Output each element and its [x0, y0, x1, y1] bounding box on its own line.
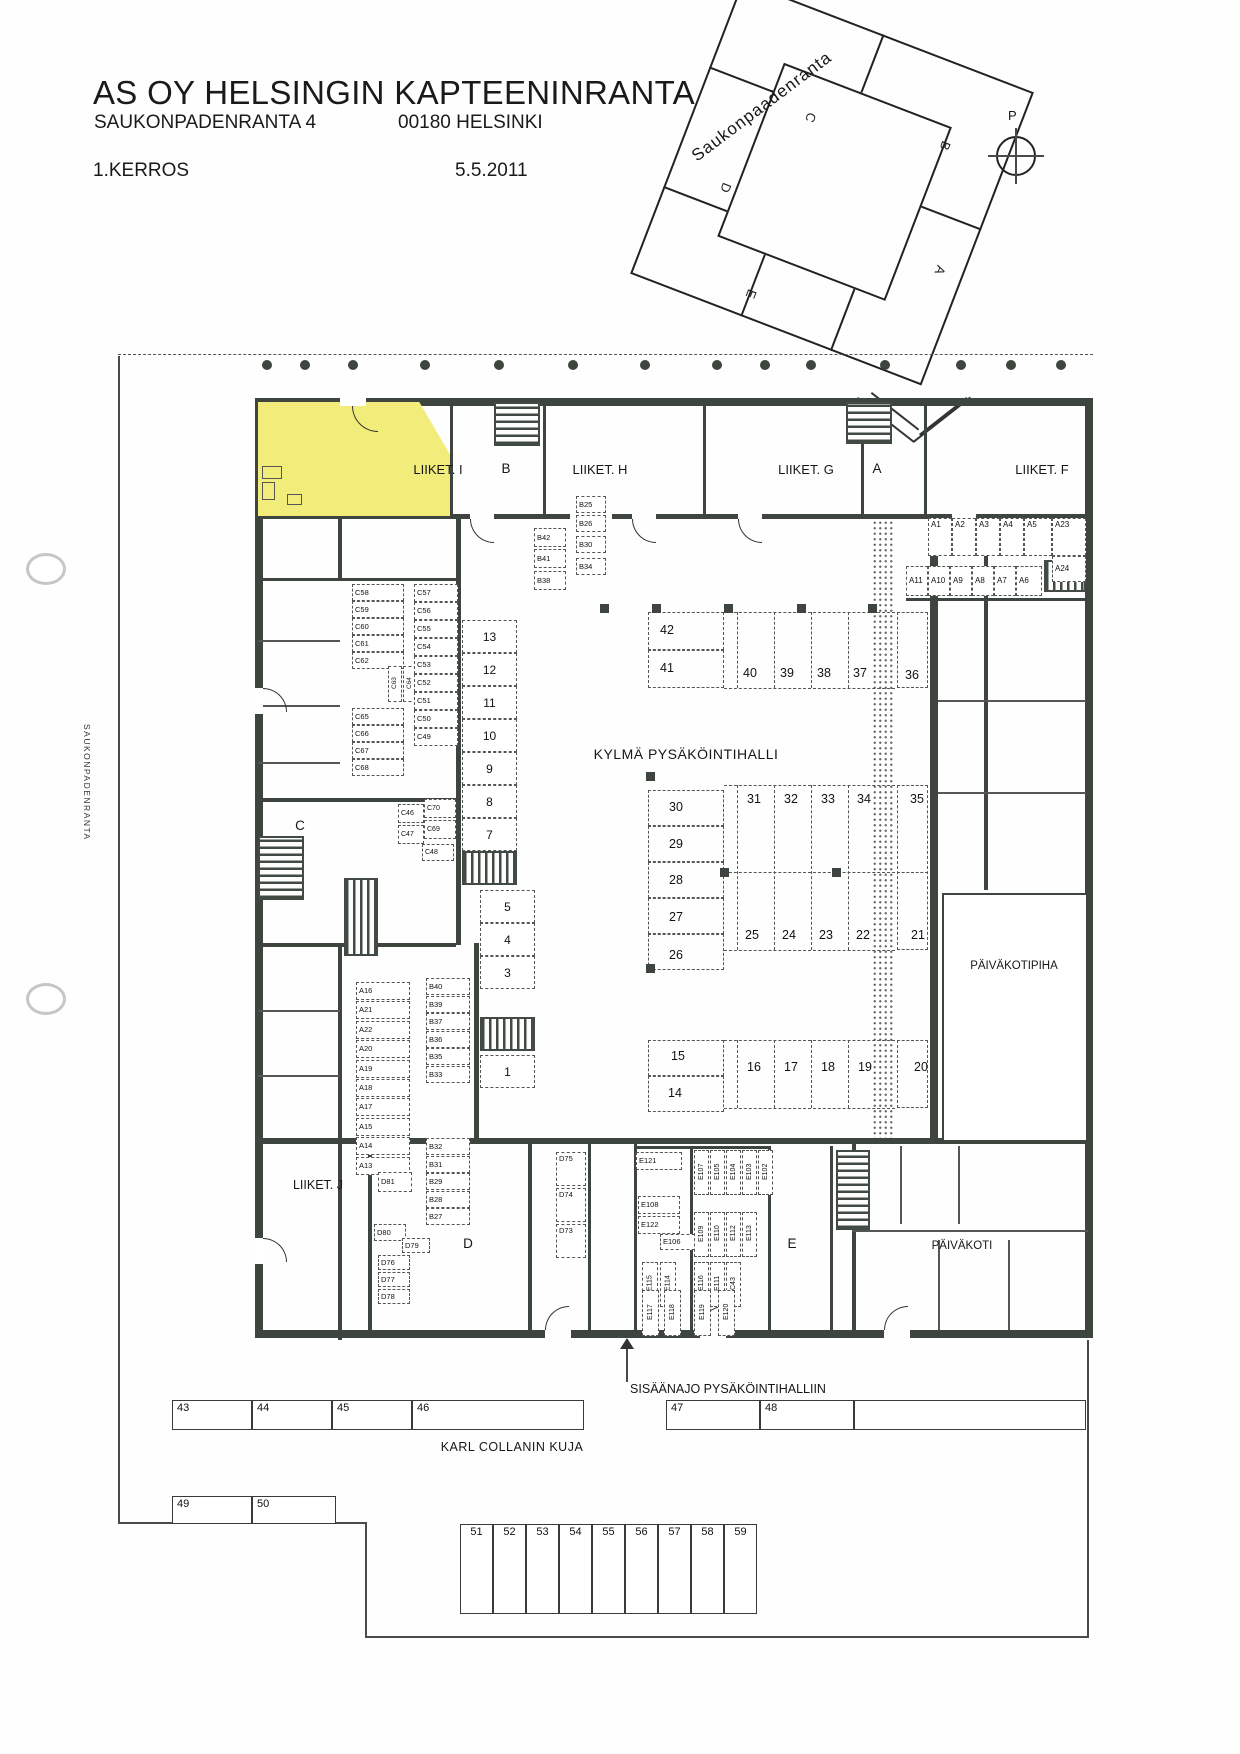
storage-room-label: C69 [424, 820, 456, 839]
parking-space-number: 35 [910, 792, 924, 806]
unit-label-liiket-h: LIIKET. H [573, 462, 628, 477]
parking-space: 9 [462, 752, 517, 785]
storage-room-label: C70 [424, 799, 456, 818]
parking-space-number: 32 [784, 792, 798, 806]
storage-room-label: B40 [426, 978, 470, 995]
storage-room-label: D78 [378, 1289, 410, 1304]
unit-label-liiket-i: LIIKET. I [413, 462, 462, 477]
storage-room-label: A22 [356, 1021, 410, 1039]
dbox [648, 826, 724, 862]
storage-room-label: B32 [426, 1138, 470, 1155]
storage-room-label: A23 [1052, 518, 1086, 556]
structural-pillar [832, 868, 841, 877]
dash [724, 950, 895, 951]
parking-space: 8 [462, 785, 517, 818]
dbox [648, 1040, 724, 1076]
door-arc [884, 1306, 908, 1330]
bollard-dot [956, 360, 966, 370]
address: SAUKONPADENRANTA 4 [94, 112, 316, 134]
bollard-dot [262, 360, 272, 370]
structural-pillar [720, 868, 729, 877]
wall [450, 400, 453, 516]
parking-space-number: 25 [745, 928, 759, 942]
wall [703, 400, 706, 516]
stairs-icon [258, 836, 304, 900]
thin [938, 1240, 940, 1330]
wall [338, 518, 342, 580]
daycare-yard-label: PÄIVÄKOTIPIHA [970, 960, 1058, 972]
parking-space-number: 33 [821, 792, 835, 806]
furn [287, 494, 302, 505]
structural-pillar [600, 604, 609, 613]
dash [897, 872, 928, 873]
parking-space-number: 31 [747, 792, 761, 806]
storage-room-label: C63 [388, 666, 402, 702]
thin [258, 1010, 340, 1012]
ln [365, 1636, 1089, 1638]
wall [255, 578, 456, 581]
bollard-dot [1006, 360, 1016, 370]
wall [906, 598, 1088, 601]
dbox [648, 862, 724, 898]
parking-space: 5 [480, 890, 535, 923]
storage-room-label: E105 [710, 1150, 725, 1195]
storage-room-label: D74 [556, 1188, 586, 1222]
storage-room-label: A10 [928, 566, 950, 596]
thin [938, 700, 1086, 702]
parking-space-number: 19 [858, 1060, 872, 1074]
storage-room-label: E110 [710, 1212, 725, 1257]
storage-room-label: B42 [534, 528, 566, 547]
hole-punch [26, 983, 66, 1015]
wall [636, 1146, 770, 1149]
storage-room-label: D73 [556, 1224, 586, 1258]
dashv [811, 785, 812, 950]
storage-room-label: A9 [950, 566, 972, 596]
dashv [811, 1040, 812, 1108]
storage-room-label: B25 [576, 496, 606, 513]
bollard-dot [760, 360, 770, 370]
section-label-b: B [501, 461, 510, 476]
bollard-dot [712, 360, 722, 370]
parking-space: 4 [480, 923, 535, 956]
storage-room-label: A6 [1016, 566, 1042, 596]
wall [474, 943, 479, 1142]
parking-space: 55 [592, 1524, 625, 1614]
parking-space: 45 [332, 1400, 412, 1430]
parking-space [854, 1400, 1086, 1430]
parking-space-number: 26 [669, 948, 683, 962]
storage-room-label: C51 [414, 692, 458, 710]
thin [258, 1075, 340, 1077]
door-arc [470, 519, 494, 543]
entrance-label: SISÄÄNAJO PYSÄKÖINTIHALLIIN [630, 1382, 826, 1396]
parking-space-number: 34 [857, 792, 871, 806]
parking-space: 58 [691, 1524, 724, 1614]
parking-space-number: 29 [669, 837, 683, 851]
entrance-arrow-icon [626, 1348, 628, 1382]
structural-pillar [646, 964, 655, 973]
dashv [774, 612, 775, 688]
street-name-south: KARL COLLANIN KUJA [441, 1440, 584, 1454]
storage-room-label: D79 [402, 1238, 430, 1253]
storage-room-label: C59 [352, 601, 404, 618]
storage-room-label: E113 [742, 1212, 757, 1257]
ln [1087, 1340, 1089, 1638]
storage-room-label: A4 [1000, 518, 1024, 556]
section-label-a: A [872, 461, 881, 476]
parking-space: 7 [462, 818, 517, 851]
structural-pillar [646, 772, 655, 781]
thin [258, 640, 340, 642]
storage-room-label: B29 [426, 1173, 470, 1190]
storage-room-label: A14 [356, 1137, 410, 1155]
storage-room-label: A18 [356, 1079, 410, 1097]
floor-plan-page: AS OY HELSINGIN KAPTEENINRANTA SAUKONPAD… [0, 0, 1240, 1754]
storage-room-label: B35 [426, 1048, 470, 1065]
storage-room-label: B27 [426, 1208, 470, 1225]
storage-room-label: C54 [414, 638, 458, 656]
parking-space: 46 [412, 1400, 584, 1430]
storage-room-label: A19 [356, 1060, 410, 1078]
dash [724, 872, 895, 873]
storage-room-label: A2 [952, 518, 976, 556]
dash [724, 785, 895, 786]
bollard-dot [640, 360, 650, 370]
storage-room-label: B31 [426, 1156, 470, 1173]
dbox [648, 790, 724, 826]
door-arc [545, 1306, 569, 1330]
storage-room-label: B34 [576, 558, 606, 575]
dash [724, 1040, 895, 1041]
wall [528, 1142, 532, 1334]
storage-room-label: A8 [972, 566, 994, 596]
parking-space: 47 [666, 1400, 760, 1430]
dbox [897, 1040, 928, 1108]
parking-space-number: 36 [905, 668, 919, 682]
dashv [737, 785, 738, 950]
storage-room-label: C58 [352, 584, 404, 601]
bollard-dot [1056, 360, 1066, 370]
parking-space-number: 14 [668, 1086, 682, 1100]
daycare-yard-outline [942, 893, 1088, 1142]
structural-pillar [868, 604, 877, 613]
dashv [774, 1040, 775, 1108]
storage-room-label: A20 [356, 1040, 410, 1058]
bollard-dot [300, 360, 310, 370]
furn [262, 466, 282, 479]
gap [255, 688, 263, 714]
wall [588, 1142, 591, 1334]
stairs-icon [462, 851, 517, 885]
gap [255, 1238, 263, 1264]
storage-room-label: B41 [534, 549, 566, 568]
storage-room-label: C56 [414, 602, 458, 620]
dashv [737, 1040, 738, 1108]
storage-room-label: A21 [356, 1001, 410, 1019]
storage-room-label: B39 [426, 996, 470, 1013]
storage-room-label: A5 [1024, 518, 1052, 556]
storage-room-label: E122 [638, 1216, 680, 1234]
parking-space-number: 38 [817, 666, 831, 680]
furn [262, 482, 275, 500]
parking-space: 52 [493, 1524, 526, 1614]
dashv [848, 612, 849, 688]
wall [543, 400, 546, 516]
storage-room-label: A17 [356, 1098, 410, 1116]
storage-room-label: C61 [352, 635, 404, 652]
storage-room-label: C67 [352, 742, 404, 759]
parking-space: 50 [252, 1496, 336, 1524]
parking-space: 43 [172, 1400, 252, 1430]
stairs-icon [494, 402, 540, 446]
entrance-arrow-head [620, 1338, 634, 1349]
dbox [648, 1076, 724, 1112]
parking-space: 13 [462, 620, 517, 653]
thin [900, 1146, 902, 1224]
storage-room-label: C60 [352, 618, 404, 635]
parking-space: 59 [724, 1524, 757, 1614]
storage-room-label: C53 [414, 656, 458, 674]
storage-room-label: E108 [638, 1196, 680, 1214]
storage-room-label: E109 [694, 1212, 709, 1257]
storage-room-label: E104 [726, 1150, 741, 1195]
storage-room-label: A16 [356, 982, 410, 1000]
storage-room-label: A11 [906, 566, 928, 596]
dashv [848, 1040, 849, 1108]
storage-room-label: C47 [398, 825, 424, 844]
wall [830, 1146, 833, 1334]
date-label: 5.5.2011 [455, 160, 528, 182]
parking-space-number: 18 [821, 1060, 835, 1074]
thin [852, 1230, 1088, 1232]
storage-room-label: E121 [636, 1152, 682, 1170]
dbox [897, 785, 928, 950]
parking-space-number: 28 [669, 873, 683, 887]
compass-north-label: P [1008, 108, 1017, 123]
door-arc [632, 519, 656, 543]
structural-pillar [724, 604, 733, 613]
parking-space-number: 41 [660, 661, 674, 675]
parking-space-number: 15 [671, 1049, 685, 1063]
parking-space: 57 [658, 1524, 691, 1614]
dashv [811, 612, 812, 688]
storage-room-label: E117 [642, 1290, 659, 1336]
storage-room-label: C68 [352, 759, 404, 776]
parking-space-number: 20 [914, 1060, 928, 1074]
parking-space: 48 [760, 1400, 854, 1430]
parking-space-number: 21 [911, 928, 925, 942]
door-arc [263, 688, 287, 712]
storage-room-label: B36 [426, 1031, 470, 1048]
storage-room-label: E120 [718, 1290, 735, 1336]
bollard-dot [348, 360, 358, 370]
dbox [648, 898, 724, 934]
wall [1085, 398, 1093, 1338]
bollard-dot [880, 360, 890, 370]
storage-room-label: C66 [352, 725, 404, 742]
dbox [648, 934, 724, 970]
bollard-dot [806, 360, 816, 370]
thin [1008, 1240, 1010, 1330]
storage-room-label: C50 [414, 710, 458, 728]
parking-space: 1 [480, 1055, 535, 1088]
parking-space-number: 37 [853, 666, 867, 680]
parking-space-number: 40 [743, 666, 757, 680]
wall [924, 400, 927, 516]
storage-room-label: A15 [356, 1118, 410, 1136]
storage-room-label: B30 [576, 536, 606, 553]
storage-room-label: D77 [378, 1272, 410, 1287]
stairs-icon [344, 878, 378, 956]
parking-space: 3 [480, 956, 535, 989]
structural-pillar [797, 604, 806, 613]
section-label-c: C [295, 818, 305, 833]
wall [338, 943, 342, 1340]
stairs-icon [836, 1150, 870, 1230]
parking-space: 44 [252, 1400, 332, 1430]
parking-space-number: 22 [856, 928, 870, 942]
street-name-west: SAUKONPADENRANTA [82, 724, 92, 841]
gap [884, 1330, 910, 1338]
storage-room-label: E119 [694, 1290, 711, 1336]
storage-room-label: B26 [576, 515, 606, 532]
unit-label-liiket-f: LIIKET. F [1015, 462, 1068, 477]
storage-room-label: A3 [976, 518, 1000, 556]
parking-space-number: 24 [782, 928, 796, 942]
parking-space: 51 [460, 1524, 493, 1614]
storage-room-label: D81 [378, 1172, 412, 1192]
parking-space-number: 42 [660, 623, 674, 637]
stairs-icon [846, 402, 892, 444]
floor-label: 1.KERROS [93, 160, 189, 182]
storage-room-label: C52 [414, 674, 458, 692]
dash [724, 1108, 895, 1109]
storage-room-label: B37 [426, 1013, 470, 1030]
storage-room-label: C48 [422, 844, 454, 861]
unit-label-liiket-j: LIIKET. J [293, 1178, 343, 1192]
ln [118, 356, 120, 1524]
section-label-e: E [787, 1236, 796, 1251]
storage-room-label: B38 [534, 571, 566, 590]
parking-space-number: 27 [669, 910, 683, 924]
gap [340, 398, 366, 406]
storage-room-label: E107 [694, 1150, 709, 1195]
storage-room-label: D75 [556, 1152, 586, 1186]
dash [118, 354, 1093, 355]
parking-space-number: 23 [819, 928, 833, 942]
storage-room-label: D76 [378, 1255, 410, 1270]
daycare-label: PÄIVÄKOTI [932, 1240, 993, 1252]
thin [938, 792, 1086, 794]
storage-room-label: A7 [994, 566, 1016, 596]
parking-space-number: 39 [780, 666, 794, 680]
parking-space: 56 [625, 1524, 658, 1614]
section-label-d: D [463, 1236, 473, 1251]
storage-room-label: A24 [1052, 556, 1086, 582]
storage-room-label: E103 [742, 1150, 757, 1195]
unit-label-liiket-g: LIIKET. G [778, 462, 834, 477]
storage-room-label: E102 [758, 1150, 773, 1195]
structural-pillar [652, 604, 661, 613]
wall [634, 1142, 637, 1334]
bollard-dot [420, 360, 430, 370]
parking-space: 49 [172, 1496, 252, 1524]
hole-punch [26, 553, 66, 585]
thin [258, 762, 340, 764]
stairs-icon [480, 1017, 535, 1051]
storage-room-label: E112 [726, 1212, 741, 1257]
door-arc [263, 1238, 287, 1262]
dashv [774, 785, 775, 950]
parking-hall-label: KYLMÄ PYSÄKÖINTIHALLI [594, 746, 779, 762]
storage-room-label: C49 [414, 728, 458, 746]
storage-room-label: C57 [414, 584, 458, 602]
dash [724, 688, 895, 689]
parking-space-number: 16 [747, 1060, 761, 1074]
parking-space-number: 30 [669, 800, 683, 814]
parking-space: 12 [462, 653, 517, 686]
parking-space: 10 [462, 719, 517, 752]
page-title: AS OY HELSINGIN KAPTEENINRANTA [93, 74, 695, 112]
dashv [737, 612, 738, 688]
storage-room-label: C46 [398, 804, 424, 823]
ln [365, 1522, 367, 1638]
parking-space-number: 17 [784, 1060, 798, 1074]
bollard-dot [568, 360, 578, 370]
storage-room-label: A1 [928, 518, 952, 556]
storage-room-label: B28 [426, 1191, 470, 1208]
parking-space: 11 [462, 686, 517, 719]
storage-room-label: C55 [414, 620, 458, 638]
dashv [848, 785, 849, 950]
thin [958, 1146, 960, 1224]
storage-room-label: E118 [664, 1290, 681, 1336]
parking-space: 53 [526, 1524, 559, 1614]
storage-room-label: B33 [426, 1066, 470, 1083]
parking-space: 54 [559, 1524, 592, 1614]
postal-code: 00180 HELSINKI [398, 112, 543, 134]
wall [930, 518, 938, 1142]
gap [545, 1330, 571, 1338]
bollard-dot [494, 360, 504, 370]
compass-axis [1015, 128, 1017, 184]
storage-room-label: C65 [352, 708, 404, 725]
door-arc [738, 519, 762, 543]
